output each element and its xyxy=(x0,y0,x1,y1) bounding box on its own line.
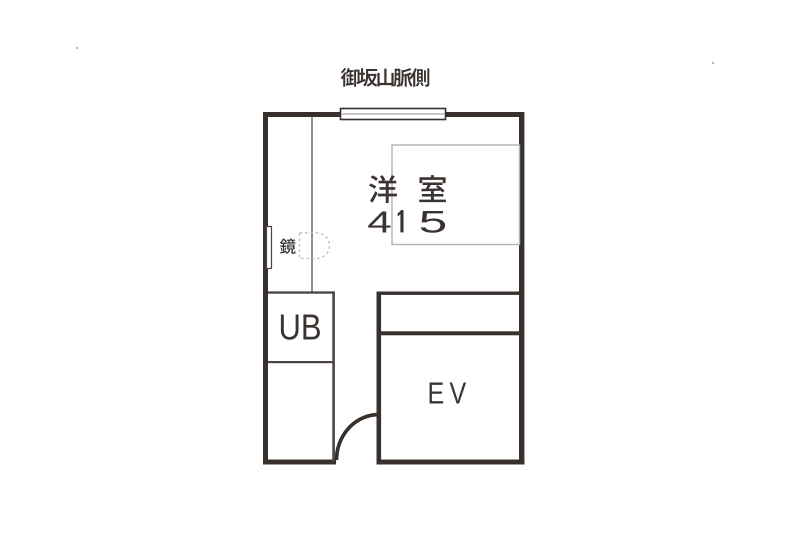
svg-text:EV: EV xyxy=(428,376,472,410)
svg-text:UB: UB xyxy=(279,308,322,348)
svg-text:5: 5 xyxy=(419,205,448,239)
svg-text:4: 4 xyxy=(367,205,391,239)
